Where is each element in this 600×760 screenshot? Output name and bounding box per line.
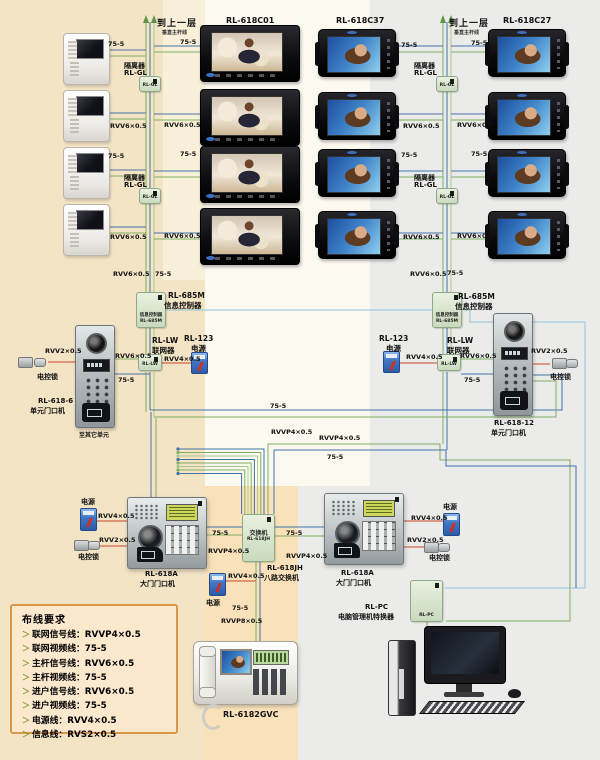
- wire-label: RVV4×0.5: [98, 512, 135, 520]
- pc-monitor: [424, 626, 506, 684]
- other-units-label: 至其它单元: [79, 430, 109, 439]
- power-label: 电源: [81, 497, 95, 507]
- trunk-sub-label: 垂直主杆线: [162, 29, 187, 36]
- power-supply: [209, 573, 226, 596]
- wire-label: RVVP4×0.5: [319, 434, 360, 442]
- wire-label: 75-5: [327, 453, 343, 461]
- phone-keypad: [253, 669, 289, 695]
- model-title-c37: RL-618C37: [336, 16, 384, 25]
- lock-label: 电控锁: [429, 553, 450, 563]
- converter-label: RL-PC: [365, 603, 388, 611]
- brand-logo: [347, 31, 357, 34]
- phone-lcd: [253, 650, 289, 665]
- to-upper-floor-label: 到上一层: [449, 16, 489, 29]
- pc-monitor-stand: [456, 684, 472, 692]
- pc-screen: [431, 632, 499, 674]
- wiring-diagram: RL-GL RL-GL RL-GL RL-GL 信息控制器 RL-685M 信息…: [0, 0, 600, 760]
- power-supply: [80, 508, 97, 531]
- monitor-buttons: [387, 39, 390, 69]
- lock-label: 电控锁: [550, 372, 571, 382]
- video-monitor-c01: [200, 25, 300, 82]
- monitor-screen: [327, 36, 381, 73]
- unit-buttons: [70, 62, 79, 78]
- power-label: 电源: [191, 343, 206, 354]
- pc-monitor-base: [444, 692, 484, 697]
- card-reader: [82, 403, 110, 422]
- station-label: RL-618A: [145, 570, 178, 578]
- wire-label: RVV6×0.5: [457, 121, 494, 129]
- isolator-label: RL-GL: [414, 69, 437, 77]
- wire-label: RVV2×0.5: [45, 347, 82, 355]
- speaker-grill: [68, 41, 77, 59]
- wire-label: 75-5: [232, 604, 248, 612]
- video-monitor-c01: [200, 89, 300, 146]
- power-label: 电源: [443, 502, 457, 512]
- switch-label: RL-618JH: [267, 564, 303, 572]
- station-label: 单元门口机: [491, 428, 526, 438]
- wire-label: 75-5: [464, 376, 480, 384]
- wire-label: RVV6×0.5: [410, 270, 447, 278]
- monitor-screen: [211, 32, 283, 72]
- isolator-rl-gl: RL-GL: [139, 76, 161, 92]
- wire-label: RVVP4×0.5: [286, 552, 327, 560]
- isolator-rl-gl: RL-GL: [436, 188, 458, 204]
- wire-label: RVV4×0.5: [411, 514, 448, 522]
- wire-label: 75-5: [180, 38, 196, 46]
- station-lcd: [166, 504, 198, 521]
- station-keypad: [165, 525, 199, 555]
- requirement-item: 进户信号线：RVV6×0.5: [22, 685, 176, 699]
- wire-label: RVV6×0.5: [110, 122, 147, 130]
- lock-label: 电控锁: [78, 552, 99, 562]
- gate-door-station-rl618a: [324, 493, 404, 565]
- station-label: 大门门口机: [140, 579, 175, 589]
- monitor-buttons: [215, 74, 277, 77]
- station-label: 大门门口机: [336, 578, 371, 588]
- networker-label: RL-LW: [152, 336, 178, 345]
- isolator-label: RL-GL: [124, 181, 147, 189]
- video-monitor-c37: [318, 149, 396, 197]
- wire-label: 75-5: [471, 150, 487, 158]
- unit-door-station-rl618-6: [75, 325, 115, 428]
- power-lock-lines: [48, 362, 550, 581]
- camera-lens: [86, 333, 107, 354]
- wire-label: RVV6×0.5: [403, 233, 440, 241]
- gate-door-station-rl618a: [127, 497, 207, 569]
- video-monitor-c27: [488, 29, 566, 77]
- electric-lock-icon: [552, 357, 578, 368]
- electric-lock-icon: [18, 356, 46, 367]
- trunk-sub-label: 垂直主杆线: [454, 29, 479, 36]
- wire-label: RVV6×0.5: [113, 270, 150, 278]
- lock-label: 电控锁: [37, 372, 58, 382]
- wire-label: 75-5: [286, 529, 302, 537]
- station-label: RL-618A: [341, 569, 374, 577]
- power-label: RL-123: [184, 334, 213, 343]
- video-monitor-c01: [200, 208, 300, 265]
- requirement-item: 电源线：RVV4×0.5: [22, 714, 176, 728]
- controller-label: 信息控制器: [455, 301, 493, 312]
- networker-label: RL-LW: [447, 336, 473, 345]
- wire-label: 75-5: [401, 41, 417, 49]
- wire-label: 75-5: [471, 39, 487, 47]
- isolator-text: RL-GL: [143, 83, 158, 89]
- station-display: [83, 359, 110, 372]
- wire-label: RVV2×0.5: [531, 347, 568, 355]
- phone-model-label: RL-6182GVC: [223, 710, 278, 719]
- video-monitor-c01: [200, 146, 300, 203]
- requirement-item: 联网视频线：75-5: [22, 642, 176, 656]
- unit-screen: [76, 39, 104, 59]
- video-monitor-c27: [488, 149, 566, 197]
- box-text: RL-685M: [140, 319, 162, 325]
- wire-label: RVV2×0.5: [407, 536, 444, 544]
- pc-mouse: [508, 689, 521, 698]
- isolator-rl-gl: RL-GL: [436, 76, 458, 92]
- phone-cord: [202, 704, 224, 730]
- requirement-item: 信息线：RVS2×0.5: [22, 728, 176, 742]
- video-monitor-c37: [318, 29, 396, 77]
- isolator-label: RL-GL: [124, 69, 147, 77]
- wire-label: RVV4×0.5: [164, 355, 201, 363]
- wire-label: RVV6×0.5: [110, 233, 147, 241]
- wire-label: 75-5: [212, 529, 228, 537]
- requirements-title: 布线要求: [22, 611, 176, 626]
- controller-label: 信息控制器: [164, 300, 202, 311]
- requirement-item: 进户视频线：75-5: [22, 699, 176, 713]
- station-label: RL-618-12: [494, 419, 534, 427]
- video-monitor-c37: [318, 211, 396, 259]
- requirements-list: 联网信号线：RVVP4×0.5 联网视频线：75-5 主杆信号线：RVV6×0.…: [22, 628, 176, 742]
- wire-label: RVV6×0.5: [115, 352, 152, 360]
- info-controller-rl685m: 信息控制器 RL-685M: [136, 292, 166, 328]
- electric-lock-icon: [74, 539, 100, 550]
- wire-label: 75-5: [108, 40, 124, 48]
- wire-label: RVVP4×0.5: [271, 428, 312, 436]
- station-label: 单元门口机: [30, 406, 65, 416]
- video-monitor-c37: [318, 92, 396, 140]
- wire-label: 75-5: [270, 402, 286, 410]
- wiring-requirements-panel: 布线要求 联网信号线：RVVP4×0.5 联网视频线：75-5 主杆信号线：RV…: [10, 604, 178, 734]
- wire-label: 75-5: [155, 270, 171, 278]
- requirement-item: 联网信号线：RVVP4×0.5: [22, 628, 176, 642]
- brand-logo: [206, 73, 215, 77]
- wire-label: RVVP8×0.5: [221, 617, 262, 625]
- pc-tower: [388, 640, 416, 716]
- indoor-audio-unit: [63, 33, 110, 85]
- video-monitor-c27: [488, 92, 566, 140]
- requirement-item: 主杆视频线：75-5: [22, 671, 176, 685]
- isolator-label: RL-GL: [414, 181, 437, 189]
- speaker-holes: [134, 504, 160, 520]
- controller-label: RL-685M: [168, 291, 205, 300]
- to-upper-floor-label: 到上一层: [157, 16, 197, 29]
- wire-label: 75-5: [447, 269, 463, 277]
- wire-label: RVVP4×0.5: [208, 547, 249, 555]
- management-phone-rl6182gvc: [193, 641, 298, 705]
- power-label: 电源: [206, 598, 220, 608]
- power-label: 电源: [386, 343, 401, 354]
- wire-label: RVV2×0.5: [99, 536, 136, 544]
- wire-label: RVV4×0.5: [228, 572, 265, 580]
- indoor-audio-unit: [63, 147, 110, 199]
- wire-label: RVV6×0.5: [403, 122, 440, 130]
- wire-label: RVV6×0.5: [460, 352, 497, 360]
- box-text: RL-618JH: [247, 537, 270, 543]
- wire-label: RVV6×0.5: [164, 121, 201, 129]
- power-supply-rl123: [383, 351, 400, 373]
- video-monitor-c27: [488, 211, 566, 259]
- wire-label: 75-5: [108, 152, 124, 160]
- model-title-c01: RL-618C01: [226, 16, 274, 25]
- wire-label: 75-5: [118, 376, 134, 384]
- card-reader: [137, 547, 163, 562]
- converter-label: 电脑管理机特换器: [338, 612, 394, 622]
- power-label: RL-123: [379, 334, 408, 343]
- station-keypad: [83, 376, 109, 403]
- requirement-item: 主杆信号线：RVV6×0.5: [22, 657, 176, 671]
- isolator-rl-gl: RL-GL: [139, 188, 161, 204]
- switch-label: 八路交换机: [264, 573, 299, 583]
- unit-door-station-rl618-12: [493, 313, 533, 416]
- phone-handset: [199, 647, 216, 697]
- station-label: RL-618-6: [38, 397, 73, 405]
- model-title-c27: RL-618C27: [503, 16, 551, 25]
- wire-label: 75-5: [401, 151, 417, 159]
- wire-label: RVV4×0.5: [406, 353, 443, 361]
- wire-label: RVV6×0.5: [164, 232, 201, 240]
- indoor-audio-unit: [63, 90, 110, 142]
- wire-label: 75-5: [180, 150, 196, 158]
- pc-converter-rlpc: RL-PC: [410, 580, 443, 622]
- controller-label: RL-685M: [458, 292, 495, 301]
- indoor-audio-unit: [63, 204, 110, 256]
- phone-video-screen: [220, 649, 252, 675]
- pc-keyboard: [419, 701, 525, 714]
- wire-label: RVV6×0.5: [457, 232, 494, 240]
